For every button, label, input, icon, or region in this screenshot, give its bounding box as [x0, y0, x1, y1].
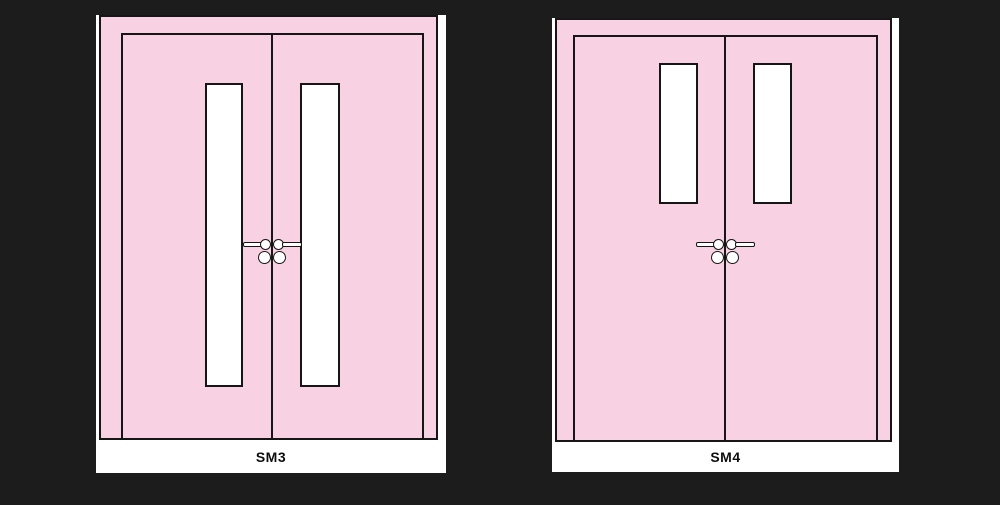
- meeting-stile: [271, 35, 273, 438]
- door-knob-left-icon: [258, 251, 271, 264]
- figure-label-sm4: SM4: [710, 449, 740, 465]
- label-band: SM4: [552, 442, 899, 472]
- meeting-stile: [724, 37, 726, 440]
- door-knob-left-icon: [711, 251, 724, 264]
- door-leaves: [573, 35, 878, 442]
- vision-panel-left: [659, 63, 698, 204]
- lever-handle-right-icon: [282, 242, 302, 247]
- vision-panel-right: [753, 63, 792, 204]
- lever-handle-right-icon: [735, 242, 755, 247]
- vision-panel-left: [205, 83, 243, 387]
- door-knob-right-icon: [726, 251, 739, 264]
- door-figure-sm3: SM3: [96, 15, 446, 473]
- vision-panel-right: [300, 83, 340, 387]
- door-figure-sm4: SM4: [552, 18, 899, 472]
- door-knob-right-icon: [273, 251, 286, 264]
- lever-rose-left-icon: [713, 239, 724, 250]
- door-leaves: [121, 33, 424, 440]
- figure-label-sm3: SM3: [256, 449, 286, 465]
- label-band: SM3: [96, 440, 446, 473]
- lever-rose-left-icon: [260, 239, 271, 250]
